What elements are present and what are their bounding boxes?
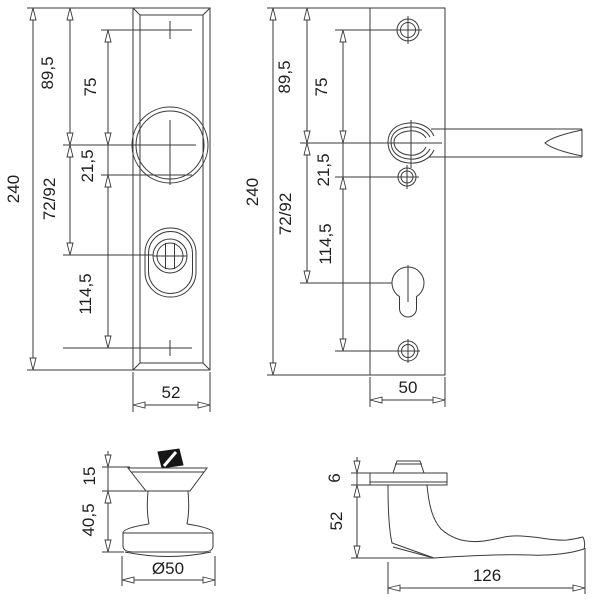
dim-label-top-to-knob: 89,5 xyxy=(38,56,57,89)
dim-label-knob-offset: 21,5 xyxy=(78,149,97,182)
dim-label-screw-to-handle: 75 xyxy=(312,78,331,97)
dim-lever-plate-screw-to-handle: 75 xyxy=(312,30,343,143)
dim-label-centre-distance: 72/92 xyxy=(276,193,295,236)
dim-label-top-to-handle: 89,5 xyxy=(275,60,294,93)
dim-knob-plate-offset: 21,5 xyxy=(78,145,108,183)
view-lever-side: 6 52 126 xyxy=(325,457,585,594)
dim-knob-base-height: 40,5 xyxy=(79,491,108,552)
dim-label-lever-length: 126 xyxy=(473,566,501,585)
dim-label-total-height: 240 xyxy=(243,178,262,206)
dim-lever-plate-centre-distance: 72/92 xyxy=(276,143,307,283)
lever-handle-side-outline xyxy=(388,485,585,558)
dim-knob-head-height: 15 xyxy=(80,451,108,491)
dim-knob-plate-screw-to-knob: 75 xyxy=(81,30,108,145)
dim-label-handle-offset: 21,5 xyxy=(314,153,333,186)
dim-lever-plate-lower-span: 114,5 xyxy=(316,177,343,351)
drawing-svg: 240 89,5 75 21,5 72/92 114,5 xyxy=(0,0,600,600)
knob-spindle xyxy=(158,449,183,468)
dim-knob-diameter: Ø50 xyxy=(122,559,215,580)
view-lever-plate-front: 240 89,5 75 21,5 72/92 114,5 xyxy=(243,8,582,407)
dim-lever-height: 52 xyxy=(327,485,357,558)
dim-label-head-height: 15 xyxy=(80,467,99,486)
dim-label-knob-diameter: Ø50 xyxy=(152,559,184,578)
dim-lever-length: 126 xyxy=(388,566,585,588)
dim-lever-plate-width: 50 xyxy=(370,378,445,400)
dim-label-lever-height: 52 xyxy=(327,512,346,531)
dim-knob-plate-top-to-knob: 89,5 xyxy=(38,8,70,145)
dim-knob-plate-lower-span: 114,5 xyxy=(76,175,108,348)
dim-knob-plate-width: 52 xyxy=(133,383,210,405)
handle-hub xyxy=(388,120,434,168)
lever-handle-front xyxy=(429,129,582,157)
dim-label-rose-thickness: 6 xyxy=(325,473,344,482)
dim-knob-plate-total-height: 240 xyxy=(4,8,33,370)
view-knob-side: 15 40,5 Ø50 xyxy=(79,449,215,586)
technical-drawing-canvas: 240 89,5 75 21,5 72/92 114,5 xyxy=(0,0,600,600)
dim-label-centre-distance: 72/92 xyxy=(40,178,59,221)
dim-rose-thickness: 6 xyxy=(325,457,357,485)
dim-label-lower-span: 114,5 xyxy=(76,273,95,314)
knob-side-outline xyxy=(123,468,213,557)
euro-cylinder-cutout xyxy=(392,265,424,317)
dim-lever-plate-total-height: 240 xyxy=(243,8,273,375)
dim-label-plate-width: 52 xyxy=(162,383,181,402)
dim-label-lower-span: 114,5 xyxy=(316,223,335,264)
dim-label-total-height: 240 xyxy=(4,175,23,203)
view-knob-plate-front: 240 89,5 75 21,5 72/92 114,5 xyxy=(4,8,210,412)
knob-plate-outline xyxy=(133,8,210,370)
dim-lever-plate-top-to-handle: 89,5 xyxy=(275,8,307,143)
lever-plate-outline xyxy=(370,8,445,375)
lever-side-extension-lines xyxy=(351,473,585,594)
dim-label-screw-to-knob: 75 xyxy=(81,78,100,97)
dim-knob-plate-centre-distance: 72/92 xyxy=(40,145,70,255)
dim-label-plate-width: 50 xyxy=(399,378,418,397)
dim-lever-plate-offset: 21,5 xyxy=(314,143,343,187)
oval-cylinder-rosette xyxy=(145,228,196,297)
dim-label-base-height: 40,5 xyxy=(79,503,98,536)
